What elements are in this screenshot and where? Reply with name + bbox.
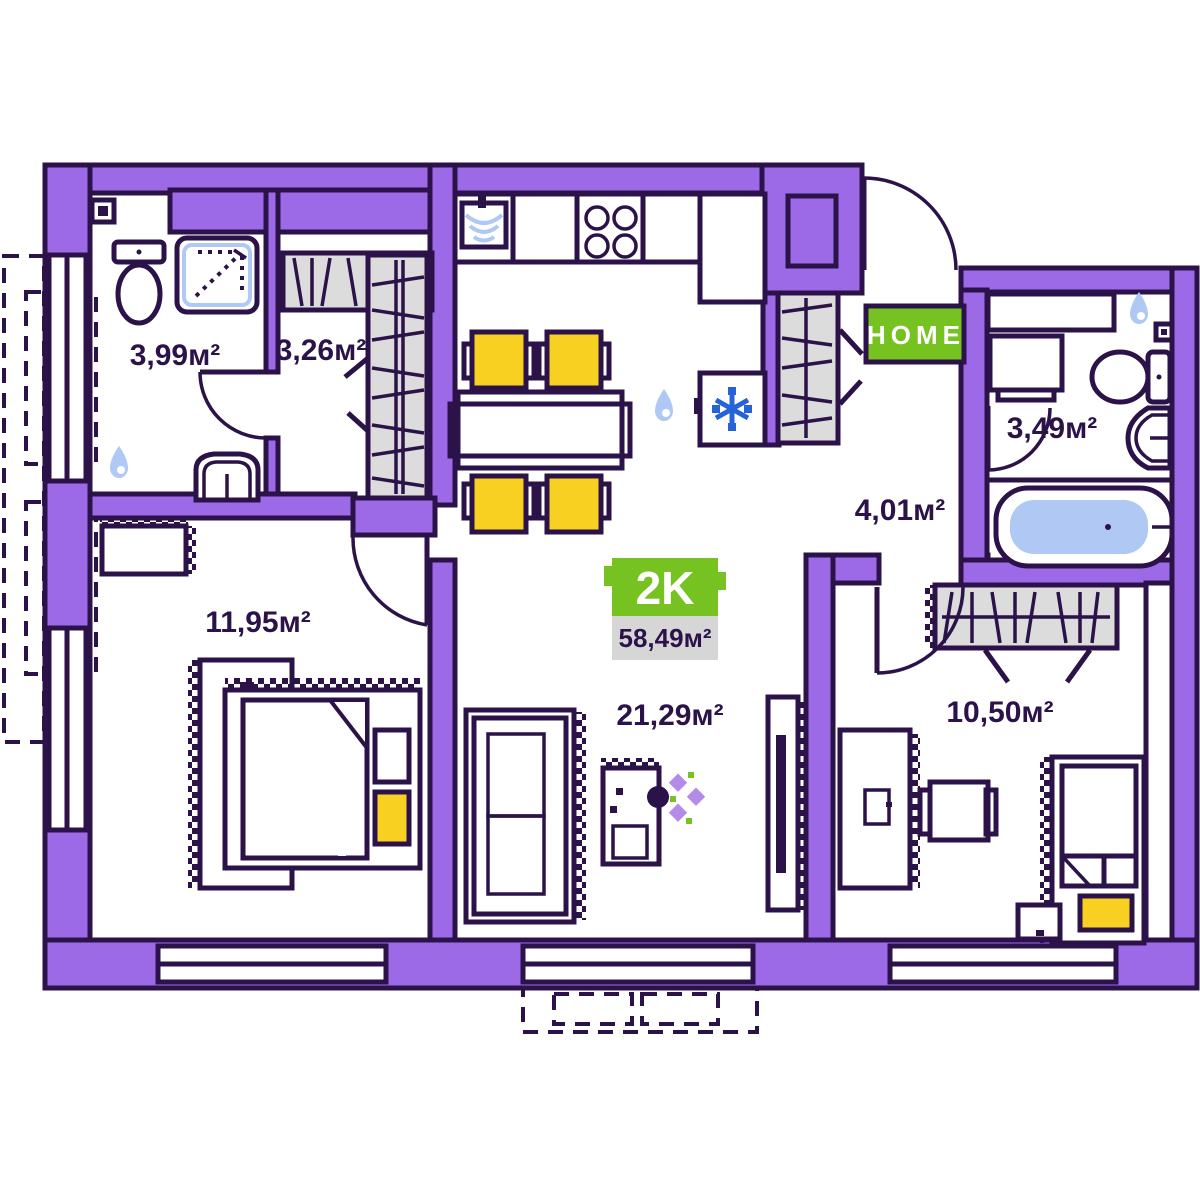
window-bottom-bedroom2 — [890, 946, 1116, 982]
closet-hanger-right — [368, 255, 427, 498]
small-valve-icon — [1156, 324, 1172, 340]
vent-switch-icon — [92, 200, 114, 222]
kitchen — [450, 192, 765, 532]
chair — [539, 332, 609, 388]
room-area-label: 10,50м² — [946, 696, 1053, 729]
wash-basin — [1128, 408, 1170, 468]
bathtub — [996, 488, 1172, 566]
water-drop-icon — [110, 446, 128, 478]
room-bathroom: 3,99м² — [92, 200, 266, 500]
room-bathroom-2: 3,49м² — [987, 292, 1172, 566]
badge-type-label: 2K — [636, 562, 695, 614]
window-left-bottom — [49, 628, 86, 830]
floor-plan: 3,99м² 3,26м² — [0, 0, 1200, 1200]
wash-basin — [196, 454, 258, 500]
nightstand-yellow — [375, 792, 409, 844]
closet-hanger-bedroom2 — [925, 585, 1117, 682]
room-living: 21,29м² — [466, 697, 808, 922]
tv-stand — [768, 697, 808, 910]
window-bottom-bedroom — [158, 946, 386, 982]
room-area-label: 3,49м² — [1007, 412, 1098, 445]
door-arc-bedroom — [353, 537, 427, 625]
room-area-label: 11,95м² — [205, 606, 311, 639]
door-arc-bathroom — [200, 372, 266, 438]
dresser — [100, 516, 196, 574]
water-drop-icon — [655, 389, 673, 421]
home-sign: HOME — [866, 306, 965, 362]
room-area-label: 4,01м² — [855, 494, 946, 527]
opening-flags-hall — [840, 330, 862, 404]
toilet — [114, 242, 164, 323]
room-area-label: 3,26м² — [276, 334, 367, 367]
room-area-label: 21,29м² — [616, 699, 723, 732]
water-drop-icon — [1130, 292, 1148, 324]
chair — [539, 476, 609, 532]
chair — [464, 476, 534, 532]
floor-plan-svg: 3,99м² 3,26м² — [0, 0, 1200, 1200]
dining-table — [450, 392, 630, 468]
plan-badge: 2K 58,49м² — [604, 558, 726, 660]
window-bottom-living — [523, 946, 753, 982]
room-area-label: 3,99м² — [130, 339, 221, 372]
toilet — [1092, 352, 1170, 402]
fridge — [694, 373, 765, 445]
home-sign-label: HOME — [867, 320, 965, 350]
coffee-table — [601, 758, 705, 864]
room-bedroom-2: 10,50м² — [840, 585, 1144, 943]
counter-corner — [700, 194, 765, 302]
badge-area-label: 58,49м² — [619, 623, 712, 653]
side-table — [1018, 905, 1060, 939]
balcony-outline-bottom — [523, 985, 757, 1032]
entry-door-arc — [864, 178, 956, 270]
opening-flags-wardrobe — [345, 358, 368, 431]
room-wardrobe: 3,26м² — [276, 253, 432, 498]
room-bedroom: 11,95м² — [100, 516, 427, 888]
shower — [177, 238, 257, 312]
sofa — [466, 710, 586, 922]
window-left-top — [49, 255, 86, 481]
bath-shelf — [988, 294, 1114, 330]
bed-stool — [1080, 896, 1132, 930]
chair — [464, 332, 534, 388]
washing-machine — [990, 336, 1062, 400]
desk-chair — [920, 782, 996, 840]
desk — [840, 730, 920, 888]
hall-closet-hanger — [778, 293, 838, 443]
